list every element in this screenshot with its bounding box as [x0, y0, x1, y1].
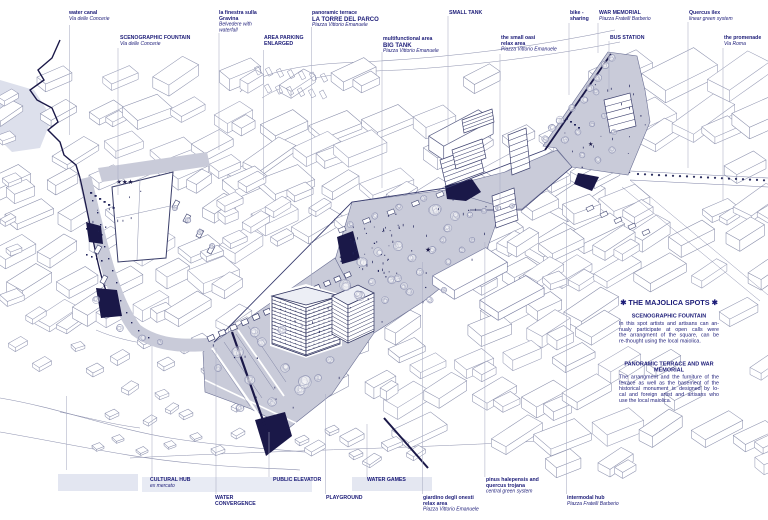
svg-text:★: ★: [588, 141, 593, 148]
svg-text:★: ★: [425, 246, 431, 254]
svg-text:★★★: ★★★: [116, 178, 134, 186]
